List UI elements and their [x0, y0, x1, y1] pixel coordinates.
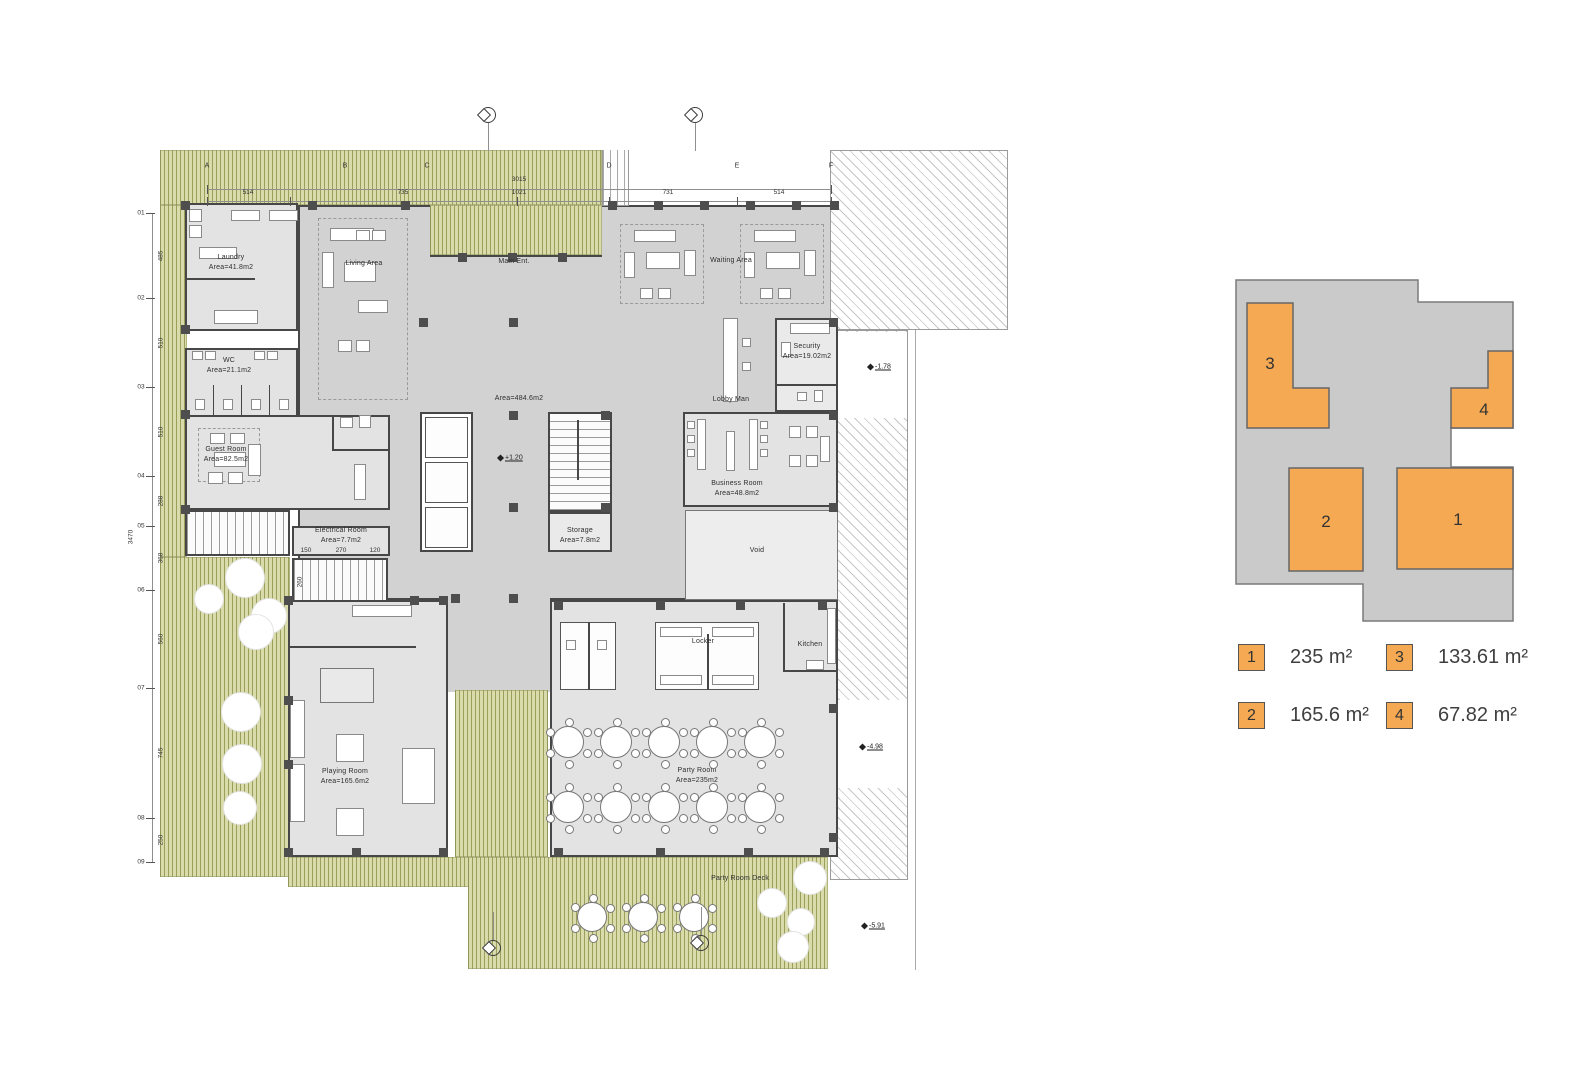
plan-shape-w — [354, 464, 366, 500]
plan-shape-w — [760, 288, 773, 299]
plan-shape-w — [402, 748, 435, 804]
chair — [613, 718, 622, 727]
grid-letter: D — [606, 163, 611, 170]
dimension-tick — [146, 387, 155, 388]
structural-column — [829, 833, 838, 842]
plan-shape-w — [687, 435, 695, 443]
round-table — [648, 726, 680, 758]
plan-shape-w — [223, 399, 233, 410]
chair — [679, 728, 688, 737]
chair — [606, 904, 615, 913]
chair — [757, 718, 766, 727]
structural-column — [829, 704, 838, 713]
level-value: +1.20 — [505, 455, 523, 462]
plan-shape-w — [254, 351, 265, 360]
plan-shape-deckN — [430, 205, 602, 257]
section-marker-stem — [695, 123, 696, 151]
plan-shape-w — [804, 250, 816, 276]
plan-shape-w — [797, 392, 807, 401]
plan-shape-w — [754, 230, 796, 242]
plan-shape-w — [356, 340, 370, 352]
stair-dimension: 270 — [336, 547, 347, 554]
structural-column — [818, 601, 827, 610]
plan-shape-wall — [332, 415, 334, 451]
chair — [775, 814, 784, 823]
plan-shape-w — [658, 288, 671, 299]
chair — [661, 718, 670, 727]
structural-column — [829, 411, 838, 420]
plan-shape-w — [684, 250, 696, 276]
dimension-tick — [146, 476, 155, 477]
plan-shape-w — [760, 435, 768, 443]
section-marker-stem — [493, 912, 494, 940]
plan-shape-hatch — [830, 150, 1008, 330]
round-table — [696, 791, 728, 823]
room-label: WC Area=21.1m2 — [207, 356, 251, 376]
plan-shape-w — [267, 351, 278, 360]
chair — [583, 814, 592, 823]
plan-shape-w — [806, 660, 824, 670]
structural-column — [308, 201, 317, 210]
chair — [583, 793, 592, 802]
structural-column — [601, 411, 610, 420]
structural-column — [829, 503, 838, 512]
chair — [661, 825, 670, 834]
chair — [661, 783, 670, 792]
plan-shape-w — [359, 415, 371, 428]
structural-column — [792, 201, 801, 210]
plan-shape-w — [279, 399, 289, 410]
chair — [757, 783, 766, 792]
chair — [738, 728, 747, 737]
level-marker: -4.98 — [860, 744, 883, 751]
chair — [661, 760, 670, 769]
dimension-label: 510 — [158, 427, 165, 438]
plan-shape-w — [290, 764, 305, 822]
round-table — [577, 902, 607, 932]
plan-shape-w — [687, 449, 695, 457]
chair — [631, 728, 640, 737]
plan-shape-w — [712, 627, 754, 637]
level-value: -5.91 — [869, 923, 885, 930]
level-marker: -1.78 — [868, 364, 891, 371]
plan-shape-w — [723, 318, 738, 402]
plan-shape-stairsV — [548, 412, 612, 512]
plan-shape-w — [352, 605, 412, 617]
tree — [221, 692, 261, 732]
plan-shape-lineG — [152, 213, 153, 862]
structural-column — [181, 410, 190, 419]
stair-dimension: 260 — [297, 577, 304, 588]
chair — [613, 783, 622, 792]
chair — [727, 728, 736, 737]
structural-column — [830, 201, 839, 210]
structural-column — [746, 201, 755, 210]
round-table — [648, 791, 680, 823]
grid-number: 03 — [137, 384, 144, 391]
key-plan-label-3: 3 — [1265, 354, 1274, 373]
chair — [642, 728, 651, 737]
plan-shape-w — [712, 675, 754, 685]
structural-column — [820, 848, 829, 857]
tree — [223, 791, 257, 825]
level-value: -4.98 — [867, 744, 883, 751]
room-label: Storage Area=7.8m2 — [560, 526, 600, 546]
plan-shape-w — [634, 230, 676, 242]
plan-shape-w — [646, 252, 680, 269]
plan-shape-gap — [831, 332, 907, 418]
dimension-tick — [146, 818, 155, 819]
plan-shape-lobby2 — [448, 598, 550, 692]
plan-shape-w — [660, 675, 702, 685]
plan-shape-w — [336, 734, 364, 762]
plan-shape-w — [827, 608, 836, 664]
plan-shape-w — [789, 426, 801, 438]
dimension-total: 3470 — [128, 530, 135, 544]
plan-shape-blk — [288, 600, 448, 857]
chair — [657, 924, 666, 933]
plan-shape-w — [231, 210, 260, 221]
structural-column — [554, 848, 563, 857]
round-table — [679, 902, 709, 932]
chair — [622, 924, 631, 933]
room-label: Laundry Area=41.8m2 — [209, 253, 253, 273]
chair — [640, 934, 649, 943]
level-marker: -5.91 — [862, 923, 885, 930]
chair — [631, 814, 640, 823]
tree — [793, 861, 827, 895]
structural-column — [509, 503, 518, 512]
grid-number: 04 — [137, 473, 144, 480]
room-label: Kitchen — [798, 640, 823, 650]
round-table — [744, 791, 776, 823]
legend-item-1: 1235 m² — [1238, 644, 1378, 671]
plan-shape-stairs — [292, 558, 388, 604]
chair — [673, 924, 682, 933]
room-label: Guest Room Area=82.5m2 — [204, 445, 248, 465]
plan-shape-w — [338, 340, 352, 352]
plan-shape-w — [340, 417, 353, 428]
legend-area-value: 133.61 m² — [1438, 644, 1528, 671]
chair — [775, 749, 784, 758]
structural-column — [410, 596, 419, 605]
plan-shape-deck — [455, 690, 548, 857]
dimension-label: 735 — [398, 189, 409, 196]
chair — [727, 814, 736, 823]
structural-column — [654, 201, 663, 210]
plan-shape-stairs — [185, 510, 290, 556]
legend-unit-number: 4 — [1386, 702, 1413, 729]
grid-number: 08 — [137, 815, 144, 822]
chair — [690, 728, 699, 737]
grid-number: 01 — [137, 210, 144, 217]
round-table — [552, 791, 584, 823]
chair — [709, 783, 718, 792]
plan-shape-w — [358, 300, 388, 313]
plan-shape-cellw — [425, 507, 468, 548]
chair — [690, 793, 699, 802]
tree — [777, 931, 809, 963]
chair — [775, 793, 784, 802]
round-table — [600, 726, 632, 758]
plan-shape-wall — [775, 384, 838, 386]
plan-shape-w — [251, 399, 261, 410]
plan-shape-wall — [185, 278, 255, 280]
structural-column — [509, 318, 518, 327]
legend-item-3: 3133.61 m² — [1386, 644, 1526, 671]
stair-dimension: 150 — [301, 547, 312, 554]
grid-number: 05 — [137, 523, 144, 530]
dimension-label: 731 — [663, 189, 674, 196]
plan-shape-w — [372, 230, 386, 241]
plan-shape-w — [566, 640, 576, 650]
tree — [225, 558, 265, 598]
room-label: Locker — [692, 637, 714, 647]
chair — [709, 825, 718, 834]
plan-shape-w — [806, 455, 818, 467]
chair — [565, 718, 574, 727]
structural-column — [352, 848, 361, 857]
plan-shape-w — [742, 338, 751, 347]
chair — [631, 749, 640, 758]
chair — [708, 924, 717, 933]
plan-shape-w — [742, 362, 751, 371]
dimension-tick — [146, 298, 155, 299]
plan-shape-w — [597, 640, 607, 650]
structural-column — [558, 253, 567, 262]
plan-shape-w — [214, 310, 258, 324]
round-table — [552, 726, 584, 758]
structural-column — [509, 411, 518, 420]
room-label: Business Room Area=48.8m2 — [711, 479, 763, 499]
chair — [709, 760, 718, 769]
dimension-tick — [146, 862, 155, 863]
plan-shape-w — [192, 351, 203, 360]
dimension-label: 288 — [158, 496, 165, 507]
structural-column — [656, 601, 665, 610]
structural-column — [458, 253, 467, 262]
chair — [709, 718, 718, 727]
plan-shape-w — [269, 210, 298, 221]
plan-shape-w — [760, 449, 768, 457]
plan-shape-w — [230, 433, 245, 444]
plan-shape-w — [624, 252, 635, 278]
grid-letter: C — [424, 163, 429, 170]
plan-shape-w — [195, 399, 205, 410]
chair — [565, 783, 574, 792]
room-label: Party Room Deck — [711, 874, 769, 884]
dimension-label: 745 — [158, 748, 165, 759]
structural-column — [439, 848, 448, 857]
chair — [589, 934, 598, 943]
plan-shape-wall — [588, 622, 590, 690]
chair — [757, 760, 766, 769]
plan-shape-deck — [288, 857, 472, 887]
key-plan-label-4: 4 — [1479, 400, 1488, 419]
plan-shape-w — [806, 426, 818, 438]
plan-shape-vlineG — [915, 330, 916, 970]
plan-shape-w — [189, 209, 202, 222]
dimension-label: 514 — [243, 189, 254, 196]
plan-shape-w — [778, 288, 791, 299]
room-label: Waiting Area — [710, 256, 752, 266]
level-value: -1.78 — [875, 364, 891, 371]
floor-plan-sheet: Laundry Area=41.8m2Living AreaMain Ent.W… — [0, 0, 1581, 1080]
plan-shape-wall — [290, 646, 416, 648]
plan-shape-w — [210, 433, 225, 444]
chair — [546, 728, 555, 737]
dimension-tick — [146, 688, 155, 689]
structural-column — [284, 696, 293, 705]
section-marker-stem — [701, 907, 702, 935]
chair — [613, 760, 622, 769]
room-label: Area=484.6m2 — [495, 394, 544, 404]
chair — [606, 924, 615, 933]
plan-shape-cellw — [425, 462, 468, 503]
plan-shape-w — [322, 252, 334, 288]
dimension-label: 3015 — [512, 176, 526, 183]
plan-shape-w — [208, 472, 223, 484]
grid-number: 07 — [137, 685, 144, 692]
chair — [613, 825, 622, 834]
chair — [757, 825, 766, 834]
structural-column — [451, 594, 460, 603]
legend-item-2: 2165.6 m² — [1238, 702, 1378, 729]
plan-shape-w — [697, 419, 706, 470]
structural-column — [744, 848, 753, 857]
plan-shape-w — [726, 431, 735, 471]
room-label: Main Ent. — [498, 257, 529, 267]
legend-unit-number: 1 — [1238, 644, 1265, 671]
dimension-tick — [146, 213, 155, 214]
chair — [679, 749, 688, 758]
chair — [708, 904, 717, 913]
room-label: Security Area=19.02m2 — [783, 342, 832, 362]
structural-column — [419, 318, 428, 327]
key-plan-label-1: 1 — [1453, 510, 1462, 529]
chair — [565, 825, 574, 834]
dimension-tick — [290, 197, 291, 206]
chair — [727, 749, 736, 758]
chair — [657, 904, 666, 913]
plan-shape-w — [814, 390, 823, 402]
structural-column — [601, 503, 610, 512]
dimension-label: 560 — [158, 634, 165, 645]
stair-dimension: 120 — [370, 547, 381, 554]
room-label: Electrical Room Area=7.7m2 — [315, 526, 367, 546]
chair — [594, 728, 603, 737]
level-marker: +1.20 — [498, 455, 523, 462]
section-marker-stem — [488, 123, 489, 151]
plan-shape-deck — [160, 150, 602, 205]
legend-item-4: 467.82 m² — [1386, 702, 1526, 729]
chair — [594, 793, 603, 802]
grid-letter: A — [205, 163, 210, 170]
dimension-tick — [737, 197, 738, 206]
plan-shape-w — [248, 444, 261, 476]
plan-shape-wall — [213, 385, 214, 415]
structural-column — [181, 505, 190, 514]
chair — [583, 728, 592, 737]
plan-shape-ramp — [602, 150, 629, 206]
dimension-label: 368 — [158, 553, 165, 564]
dimension-label: 250 — [158, 835, 165, 846]
structural-column — [181, 325, 190, 334]
structural-column — [509, 594, 518, 603]
plan-shape-w — [789, 455, 801, 467]
structural-column — [439, 596, 448, 605]
dimension-tick — [207, 185, 208, 194]
structural-column — [554, 601, 563, 610]
chair — [546, 793, 555, 802]
chair — [631, 793, 640, 802]
structural-column — [284, 848, 293, 857]
chair — [679, 814, 688, 823]
plan-shape-cellw — [425, 417, 468, 458]
plan-shape-w — [760, 421, 768, 429]
dimension-tick — [146, 590, 155, 591]
chair — [565, 760, 574, 769]
plan-shape-w — [356, 230, 370, 241]
chair — [738, 793, 747, 802]
chair — [571, 924, 580, 933]
plan-shape-w — [766, 252, 800, 269]
chair — [691, 894, 700, 903]
round-table — [696, 726, 728, 758]
chair — [642, 793, 651, 802]
dimension-tick — [207, 197, 208, 206]
structural-column — [401, 201, 410, 210]
plan-shape-w — [749, 419, 758, 470]
chair — [673, 903, 682, 912]
dimension-tick — [146, 526, 155, 527]
chair — [775, 728, 784, 737]
structural-column — [656, 848, 665, 857]
plan-shape-wall — [332, 449, 390, 451]
chair — [679, 793, 688, 802]
room-label: Lobby Man — [713, 395, 749, 405]
round-table — [628, 902, 658, 932]
legend-area-value: 165.6 m² — [1290, 702, 1369, 729]
grid-letter: B — [343, 163, 348, 170]
legend-area-value: 235 m² — [1290, 644, 1352, 671]
structural-column — [284, 760, 293, 769]
plan-shape-w — [189, 225, 202, 238]
plan-shape-w — [790, 323, 830, 334]
plan-shape-wall — [577, 420, 579, 480]
tree — [757, 888, 787, 918]
tree — [194, 584, 224, 614]
chair — [640, 894, 649, 903]
round-table — [744, 726, 776, 758]
legend-unit-number: 3 — [1386, 644, 1413, 671]
tree — [238, 614, 274, 650]
plan-shape-w — [290, 700, 305, 758]
round-table — [600, 791, 632, 823]
structural-column — [700, 201, 709, 210]
plan-shape-g — [320, 668, 374, 703]
chair — [571, 903, 580, 912]
plan-shape-w — [660, 627, 702, 637]
grid-number: 06 — [137, 587, 144, 594]
room-label: Living Area — [346, 259, 383, 269]
dimension-tick — [517, 197, 518, 206]
structural-column — [608, 201, 617, 210]
floor-plan-drawing: Laundry Area=41.8m2Living AreaMain Ent.W… — [0, 0, 1060, 1080]
plan-shape-w — [687, 421, 695, 429]
legend-area-value: 67.82 m² — [1438, 702, 1517, 729]
structural-column — [181, 201, 190, 210]
